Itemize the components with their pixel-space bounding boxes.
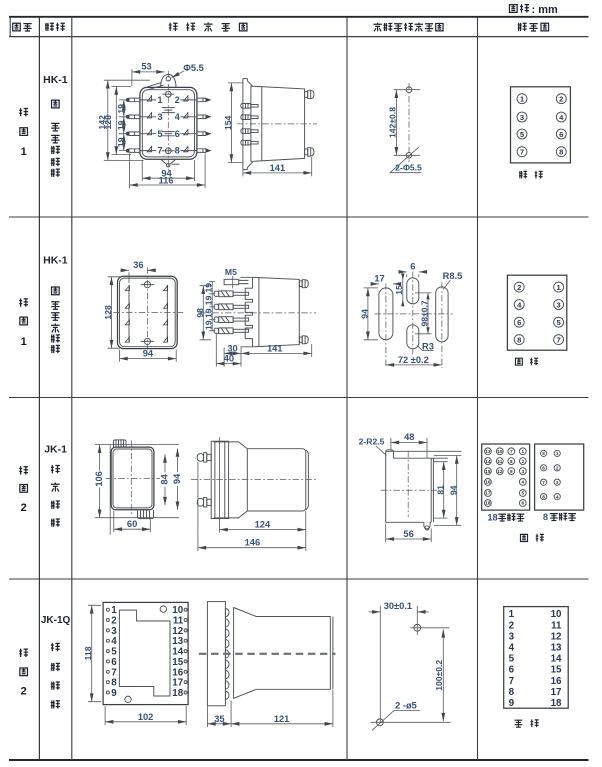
svg-text:19: 19 <box>204 320 214 330</box>
svg-text:13: 13 <box>172 636 183 647</box>
svg-text:1: 1 <box>509 609 515 620</box>
svg-text:7: 7 <box>556 335 560 344</box>
svg-text:15: 15 <box>394 285 404 295</box>
svg-text:1: 1 <box>521 449 524 454</box>
svg-text:HK-1: HK-1 <box>43 254 68 266</box>
svg-text:154: 154 <box>223 116 233 131</box>
svg-text:94: 94 <box>172 473 182 484</box>
svg-text:6: 6 <box>175 129 180 139</box>
svg-text:7: 7 <box>542 480 545 485</box>
svg-text:5: 5 <box>521 491 524 496</box>
svg-text:19: 19 <box>204 295 214 305</box>
svg-text:94: 94 <box>143 349 154 359</box>
svg-text:11: 11 <box>497 459 502 464</box>
svg-text:2: 2 <box>111 616 117 627</box>
svg-text:2: 2 <box>556 466 559 471</box>
svg-text:2: 2 <box>517 283 521 292</box>
svg-text:100±0.2: 100±0.2 <box>434 660 444 691</box>
svg-text:R3: R3 <box>422 341 434 351</box>
svg-text:Φ5.5: Φ5.5 <box>183 63 204 73</box>
svg-text:8: 8 <box>517 335 521 344</box>
svg-text:JK-1: JK-1 <box>44 444 67 456</box>
svg-text:94: 94 <box>448 485 458 495</box>
svg-text:8: 8 <box>543 512 548 522</box>
svg-text:19: 19 <box>116 137 126 147</box>
svg-text:53: 53 <box>141 61 151 71</box>
svg-text:121: 121 <box>274 714 290 724</box>
svg-text:15: 15 <box>485 469 491 474</box>
svg-text:15: 15 <box>551 665 562 676</box>
svg-text:17: 17 <box>374 274 384 284</box>
svg-text:2: 2 <box>175 95 180 105</box>
svg-text:7: 7 <box>520 148 524 157</box>
svg-text:106: 106 <box>94 471 104 487</box>
svg-text:11: 11 <box>551 620 562 631</box>
svg-text:7: 7 <box>509 676 515 687</box>
svg-text:6: 6 <box>559 130 563 139</box>
svg-text:7: 7 <box>157 146 162 156</box>
svg-text:3: 3 <box>521 469 524 474</box>
svg-text:16: 16 <box>551 676 562 687</box>
svg-text:8: 8 <box>510 459 513 464</box>
svg-text:R8.5: R8.5 <box>443 271 463 281</box>
svg-text:HK-1: HK-1 <box>43 74 68 86</box>
svg-text:15: 15 <box>172 657 183 668</box>
svg-text:10: 10 <box>497 449 503 454</box>
svg-text:128: 128 <box>103 115 113 130</box>
svg-text:9: 9 <box>111 688 117 699</box>
svg-text:56: 56 <box>403 529 413 539</box>
svg-text:2-Φ5.5: 2-Φ5.5 <box>395 163 422 173</box>
svg-text:13: 13 <box>485 449 491 454</box>
svg-text:9: 9 <box>509 698 515 709</box>
svg-text:12: 12 <box>551 631 562 642</box>
svg-text:72 ±0.2: 72 ±0.2 <box>398 355 429 365</box>
svg-text:4: 4 <box>517 300 522 309</box>
svg-text:1: 1 <box>157 95 162 105</box>
svg-text:: mm: : mm <box>532 4 559 16</box>
svg-text:2: 2 <box>21 502 27 514</box>
svg-text:18: 18 <box>551 698 562 709</box>
svg-text:1: 1 <box>21 146 27 158</box>
svg-text:8: 8 <box>559 148 563 157</box>
svg-text:18: 18 <box>172 688 183 699</box>
svg-text:18: 18 <box>485 501 491 506</box>
svg-text:4: 4 <box>509 643 515 654</box>
svg-text:116: 116 <box>159 176 174 186</box>
svg-text:6: 6 <box>410 262 415 272</box>
svg-text:6: 6 <box>517 318 521 327</box>
svg-text:1: 1 <box>556 283 561 292</box>
svg-text:2: 2 <box>509 620 515 631</box>
svg-text:40: 40 <box>224 354 234 364</box>
svg-text:81: 81 <box>435 485 445 495</box>
svg-text:8: 8 <box>111 678 117 689</box>
svg-text:30: 30 <box>227 343 237 353</box>
svg-text:30±0.1: 30±0.1 <box>384 601 412 611</box>
svg-text:2 -ø5: 2 -ø5 <box>395 701 417 711</box>
svg-text:3: 3 <box>556 300 560 309</box>
svg-text:124: 124 <box>255 520 271 530</box>
svg-text:4: 4 <box>111 636 117 647</box>
svg-text:5: 5 <box>157 129 162 139</box>
svg-text:141: 141 <box>270 163 286 173</box>
svg-text:142±0.8: 142±0.8 <box>388 107 398 138</box>
svg-text:84: 84 <box>160 473 170 484</box>
svg-text:19: 19 <box>204 283 214 293</box>
svg-text:10: 10 <box>551 609 562 620</box>
svg-text:11: 11 <box>173 616 184 627</box>
svg-text:8: 8 <box>542 494 545 499</box>
svg-text:5: 5 <box>556 318 561 327</box>
svg-text:2: 2 <box>521 459 524 464</box>
svg-text:4: 4 <box>175 112 181 122</box>
svg-text:3: 3 <box>556 480 559 485</box>
svg-text:19: 19 <box>204 308 214 318</box>
svg-text:19: 19 <box>116 104 126 114</box>
svg-text:4: 4 <box>559 113 564 122</box>
svg-text:1: 1 <box>21 336 27 348</box>
svg-text:2-R2.5: 2-R2.5 <box>359 437 385 447</box>
svg-text:4: 4 <box>556 494 559 499</box>
svg-text:1: 1 <box>520 95 525 104</box>
svg-text:9: 9 <box>510 469 513 474</box>
svg-text:2: 2 <box>559 95 563 104</box>
svg-text:98±0.7: 98±0.7 <box>419 300 429 326</box>
svg-text:60: 60 <box>127 519 137 529</box>
svg-text:5: 5 <box>542 451 545 456</box>
svg-text:118: 118 <box>83 646 93 660</box>
svg-text:2: 2 <box>21 686 27 698</box>
svg-text:94: 94 <box>359 309 369 319</box>
svg-text:128: 128 <box>103 305 113 320</box>
svg-text:8: 8 <box>175 146 180 156</box>
svg-text:6: 6 <box>521 501 524 506</box>
svg-text:JK-1Q: JK-1Q <box>41 615 71 626</box>
svg-text:146: 146 <box>245 538 261 548</box>
svg-text:6: 6 <box>509 665 515 676</box>
svg-text:17: 17 <box>172 678 183 689</box>
svg-text:M5: M5 <box>225 267 237 277</box>
svg-text:102: 102 <box>138 712 154 722</box>
svg-text:6: 6 <box>111 657 117 668</box>
svg-text:18: 18 <box>487 513 497 523</box>
svg-text:4: 4 <box>521 480 524 485</box>
svg-text:36: 36 <box>133 260 143 270</box>
svg-text:7: 7 <box>510 449 513 454</box>
svg-text:3: 3 <box>520 113 524 122</box>
svg-text:1: 1 <box>556 451 559 456</box>
svg-text:8: 8 <box>509 687 515 698</box>
svg-text:17: 17 <box>485 491 491 496</box>
svg-text:14: 14 <box>551 654 562 665</box>
svg-text:6: 6 <box>542 466 545 471</box>
svg-text:5: 5 <box>509 654 515 665</box>
svg-text:12: 12 <box>497 469 503 474</box>
svg-text:5: 5 <box>520 130 525 139</box>
svg-text:141: 141 <box>267 343 283 353</box>
svg-text:48: 48 <box>404 432 414 442</box>
svg-text:3: 3 <box>157 112 162 122</box>
svg-text:13: 13 <box>551 643 562 654</box>
svg-text:3: 3 <box>509 631 515 642</box>
svg-text:19: 19 <box>116 120 126 130</box>
svg-text:16: 16 <box>485 480 491 485</box>
svg-text:17: 17 <box>551 687 562 698</box>
svg-text:35: 35 <box>214 714 224 724</box>
svg-text:14: 14 <box>485 459 491 464</box>
